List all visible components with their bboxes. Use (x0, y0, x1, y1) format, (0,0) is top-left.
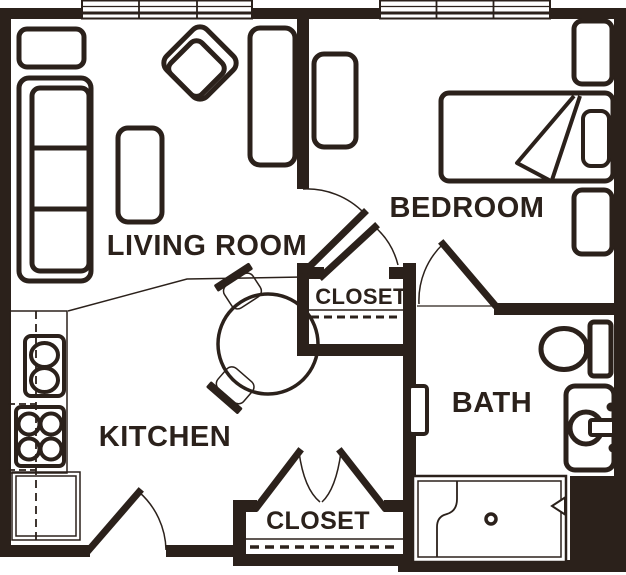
door-leaf (322, 227, 375, 276)
double-sink (25, 336, 64, 396)
door-swing-arc (139, 492, 166, 550)
bifold-leaf (257, 452, 299, 507)
toilet-tank (590, 322, 611, 376)
loveseat (250, 28, 295, 165)
faucet (590, 420, 614, 435)
stove (16, 407, 64, 466)
wall-bottom-kitchen (0, 545, 90, 557)
vanity-sink (566, 386, 618, 470)
bath-corner-block (570, 476, 626, 572)
blanket-fold-edge (552, 96, 580, 180)
entry-door (88, 492, 166, 551)
room-label-closet-upper: CLOSET (315, 284, 407, 309)
end-table (19, 29, 84, 67)
bath-top-wall (494, 303, 615, 315)
bedroom-door (303, 189, 364, 271)
wall-niche (409, 386, 427, 434)
nightstand (574, 190, 612, 254)
bifold-leaf (341, 452, 384, 507)
closet-upper-interior (309, 310, 403, 317)
toilet-connector (584, 341, 592, 357)
closet-lower-top-stub-right (384, 500, 416, 512)
wall-left (0, 8, 11, 557)
pillow (583, 111, 609, 166)
sofa (19, 78, 91, 281)
room-label-kitchen: KITCHEN (99, 421, 231, 453)
bifold-arc (322, 452, 341, 502)
closet-lower-interior (246, 539, 403, 547)
closet-door (322, 227, 398, 276)
kitchen-fixtures (8, 311, 80, 543)
bed (441, 93, 613, 181)
bifold-closet-doors (257, 452, 384, 507)
side-chair (118, 128, 162, 222)
window (380, 1, 550, 19)
bifold-arc (299, 452, 320, 502)
room-label-closet-lower: CLOSET (266, 507, 370, 535)
faucet-handle (607, 403, 616, 412)
door-swing-arc (303, 189, 364, 213)
door-leaf (443, 244, 494, 304)
toilet (541, 322, 611, 376)
dresser (314, 54, 356, 147)
floor-plan: LIVING ROOM BEDROOM KITCHEN BATH CLOSET … (0, 0, 626, 575)
closet-upper-bottom-wall (297, 344, 416, 356)
nightstand (574, 21, 612, 84)
door-leaf (88, 492, 139, 551)
closet-lower-bottom-wall (233, 554, 416, 566)
door-swing-arc (419, 244, 443, 304)
faucet-handle (609, 444, 618, 453)
armchair (160, 23, 241, 104)
window (82, 1, 252, 19)
bath-door (417, 244, 496, 306)
shower (413, 476, 566, 562)
room-label-bedroom: BEDROOM (390, 192, 545, 224)
wall-living-bedroom (297, 8, 309, 189)
door-swing-arc (375, 227, 398, 265)
room-label-bath: BATH (452, 387, 532, 419)
refrigerator (12, 472, 80, 540)
room-label-living: LIVING ROOM (107, 230, 307, 262)
floor-plan-page: LIVING ROOM BEDROOM KITCHEN BATH CLOSET … (0, 0, 626, 575)
